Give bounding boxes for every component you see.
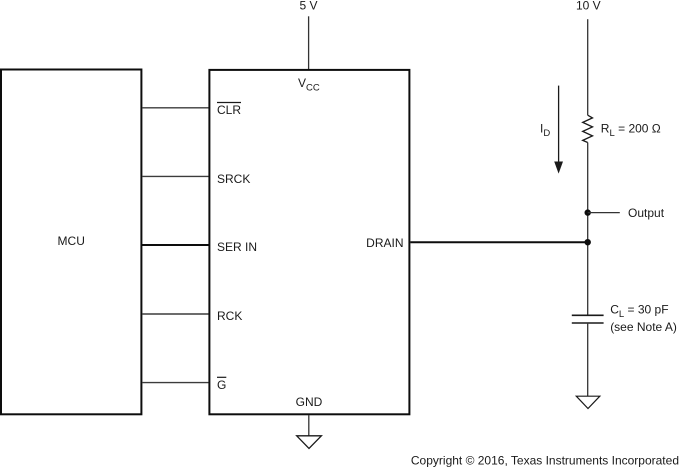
- svg-text:RCK: RCK: [217, 309, 242, 323]
- svg-text:5 V: 5 V: [299, 0, 317, 13]
- svg-text:CLR: CLR: [217, 103, 241, 117]
- svg-text:MCU: MCU: [58, 234, 85, 248]
- svg-text:G: G: [217, 378, 226, 392]
- svg-text:Output: Output: [628, 206, 665, 220]
- svg-text:DRAIN: DRAIN: [366, 236, 403, 250]
- svg-text:(see Note A): (see Note A): [610, 320, 677, 334]
- svg-text:GND: GND: [296, 395, 323, 409]
- svg-text:SER IN: SER IN: [217, 240, 257, 254]
- svg-text:Copyright © 2016, Texas Instru: Copyright © 2016, Texas Instruments Inco…: [411, 453, 679, 467]
- svg-text:SRCK: SRCK: [217, 172, 250, 186]
- svg-text:10 V: 10 V: [576, 0, 601, 13]
